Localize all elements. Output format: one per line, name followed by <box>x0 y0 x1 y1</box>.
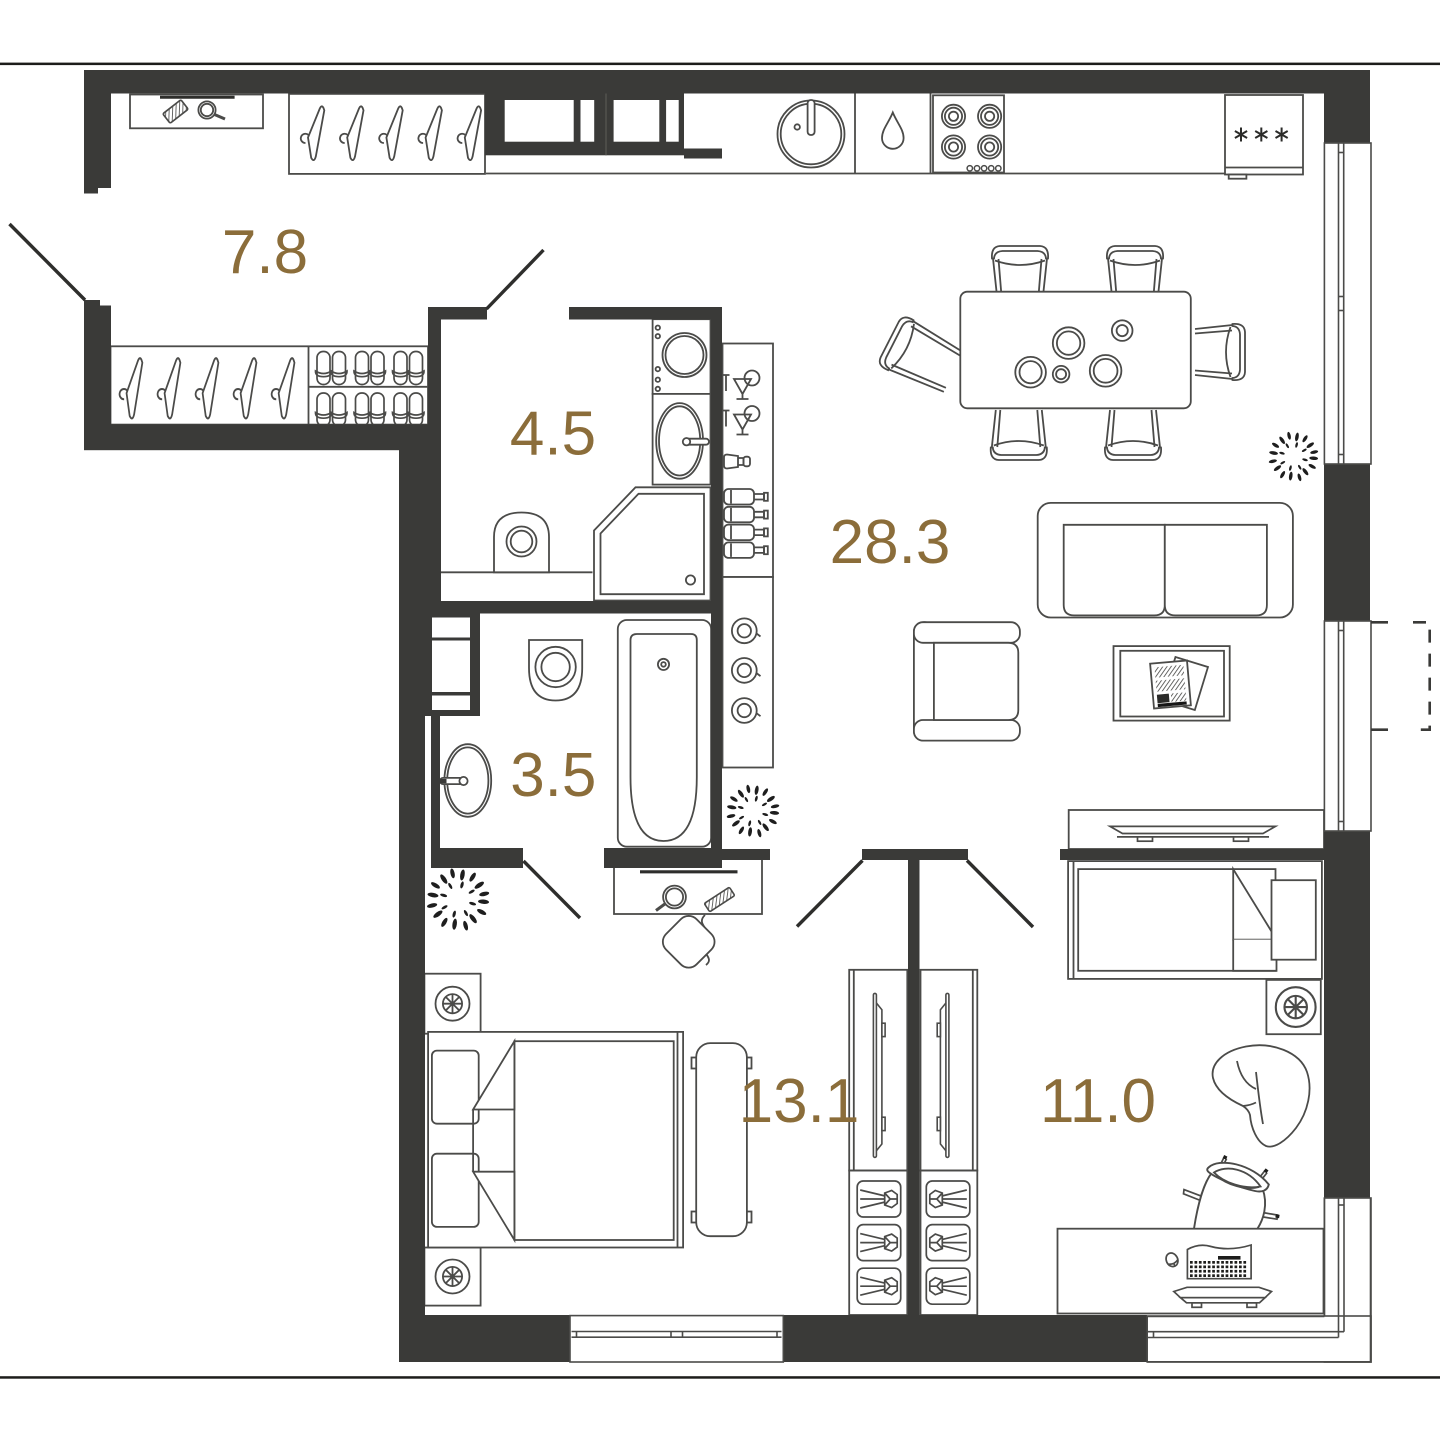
svg-text:4.5: 4.5 <box>510 400 596 469</box>
svg-text:3.5: 3.5 <box>510 741 596 810</box>
svg-text:7.8: 7.8 <box>222 218 308 287</box>
svg-text:13.1: 13.1 <box>739 1067 860 1136</box>
svg-text:28.3: 28.3 <box>830 508 951 577</box>
svg-text:11.0: 11.0 <box>1040 1067 1156 1136</box>
